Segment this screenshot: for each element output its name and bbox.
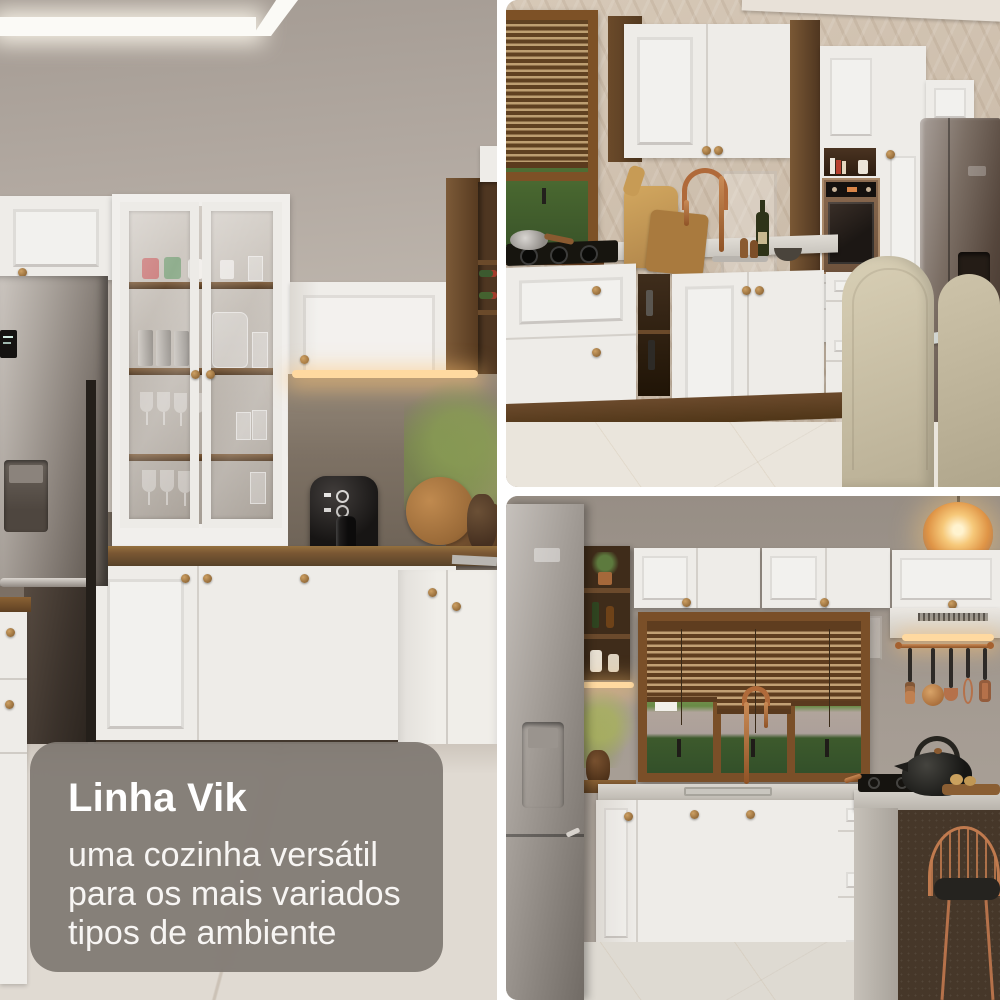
pepper-mill xyxy=(740,238,748,258)
rail-end-cap xyxy=(895,642,902,649)
cabinet-knob xyxy=(452,602,461,611)
shelf-pot xyxy=(598,572,612,585)
air-fryer-display xyxy=(324,493,331,497)
tower-upper-door xyxy=(822,50,880,144)
caption-line-1: uma cozinha versátil xyxy=(68,836,423,875)
photo-left-display-cabinet-kitchen: Linha Vik uma cozinha versátil para os m… xyxy=(0,0,497,1000)
cabinet-knob xyxy=(714,146,723,155)
cabinet-knob xyxy=(702,146,711,155)
wood-countertop xyxy=(94,546,497,566)
cabinet-knob xyxy=(690,810,699,819)
glass-display-cabinet xyxy=(112,194,290,556)
jar xyxy=(858,160,868,174)
caption-title: Linha Vik xyxy=(68,776,423,821)
utensil-handle xyxy=(949,648,953,688)
hanging-grater xyxy=(978,648,992,736)
pepper-mill xyxy=(750,240,758,258)
air-fryer-knob xyxy=(336,490,349,503)
oven-knob xyxy=(832,187,837,192)
hanging-spatula xyxy=(904,648,916,738)
product-collage: Linha Vik uma cozinha versátil para os m… xyxy=(0,0,1000,1000)
open-shelf-unit xyxy=(582,546,630,680)
blind-valance xyxy=(647,621,861,629)
cabinet-knob xyxy=(300,574,309,583)
faucet-spout xyxy=(764,702,768,728)
pane-latch xyxy=(677,739,681,757)
utensil-handle xyxy=(966,648,970,678)
ladle-bowl xyxy=(944,688,958,701)
cabinet-knob xyxy=(191,370,200,379)
shelf-divider xyxy=(582,634,630,639)
hood-vent-grille xyxy=(918,613,988,621)
burner-grate xyxy=(580,245,598,264)
fridge-badge xyxy=(534,548,560,562)
book-niche xyxy=(824,148,876,176)
upper-cabinet-right xyxy=(892,550,1000,608)
cabinet-knob xyxy=(886,150,895,159)
freezer-drawer xyxy=(24,587,88,745)
cabinet-knob xyxy=(5,700,14,709)
shelf-bottle xyxy=(592,602,599,628)
base-cabinets xyxy=(596,800,890,946)
cabinet-knob xyxy=(203,574,212,583)
island-wood-top xyxy=(0,597,31,612)
kettle-lid-knob xyxy=(934,748,942,754)
round-cutting-board xyxy=(406,477,474,545)
blind-cord xyxy=(681,629,682,725)
oven-control-panel xyxy=(826,182,876,197)
spatula-head xyxy=(905,682,915,704)
freezer-handle xyxy=(0,578,90,587)
books xyxy=(836,160,841,174)
shelf-divider xyxy=(478,310,497,315)
utensil-handle xyxy=(931,648,935,684)
bottle-neck xyxy=(760,200,765,212)
base-door xyxy=(94,566,199,742)
bread-bun xyxy=(964,776,976,786)
corner-door xyxy=(596,800,638,946)
cabinet-knob xyxy=(428,588,437,597)
faucet-riser xyxy=(744,702,749,784)
dining-chair xyxy=(938,274,1000,487)
blind-cord xyxy=(755,629,756,733)
hood-light-bar xyxy=(902,634,994,641)
fridge-badge xyxy=(968,166,986,176)
cabinet-knob xyxy=(300,355,309,364)
glass-door-right xyxy=(202,202,282,528)
dispenser-panel xyxy=(9,465,43,483)
upper-cabinet-left xyxy=(0,196,112,280)
ceiling-cove-light xyxy=(0,17,256,36)
fridge-water-dispenser xyxy=(522,722,564,808)
shelf-jar xyxy=(590,650,602,672)
oven-display xyxy=(847,187,857,192)
burner-grate xyxy=(868,777,880,789)
dining-chair xyxy=(842,256,934,487)
hanging-ladle xyxy=(944,648,958,732)
air-fryer-display xyxy=(324,508,331,512)
shelf-divider xyxy=(582,588,630,593)
books xyxy=(830,158,835,174)
utensil-handle xyxy=(908,648,912,682)
photo-top-right-kitchen-run xyxy=(506,0,1000,487)
upper-cabinet-sliver xyxy=(480,146,497,182)
glass-door-left xyxy=(120,202,199,528)
bar-stool-seat xyxy=(934,878,1000,900)
oven-door-glass xyxy=(828,202,874,264)
photo-bottom-right-window-kitchen xyxy=(506,496,1000,1000)
upper-cabinets xyxy=(624,24,790,158)
caption-line-3: tipos de ambiente xyxy=(68,914,423,953)
bottle-label xyxy=(758,232,767,244)
drawer-seam xyxy=(0,678,27,680)
window-handle xyxy=(542,188,546,204)
blind-cord xyxy=(829,629,830,727)
window xyxy=(506,10,598,258)
cutting-board xyxy=(645,209,709,277)
burner-grate xyxy=(550,246,568,265)
cabinet-knob xyxy=(746,810,755,819)
dispenser-panel xyxy=(528,728,558,748)
drawer-seam xyxy=(0,752,27,754)
wine-bottle xyxy=(479,270,497,277)
shelf-bottle xyxy=(606,606,614,628)
upper-door xyxy=(624,24,708,158)
shelf-plant xyxy=(590,552,620,574)
cabinet-knob xyxy=(820,598,829,607)
blind-section xyxy=(791,621,861,706)
chair-seam xyxy=(852,268,928,470)
whisk-wires xyxy=(963,678,973,704)
books xyxy=(842,161,846,174)
blinds-rail xyxy=(506,162,588,168)
under-cabinet-led-strip xyxy=(292,370,478,378)
ceramic-vase xyxy=(467,494,497,552)
bread-bun xyxy=(950,774,963,785)
island-drawers xyxy=(0,612,27,984)
fridge-display-panel xyxy=(0,330,17,358)
cabinet-knob xyxy=(682,598,691,607)
sink-rim xyxy=(684,787,772,796)
utensil-handle xyxy=(983,648,987,680)
cabinet-gap-shadow xyxy=(86,380,96,742)
grater-head xyxy=(979,680,991,702)
cabinet-knob xyxy=(624,812,633,821)
fridge-display-text xyxy=(3,342,11,344)
fridge-display-text xyxy=(3,336,13,338)
pane-latch xyxy=(751,739,755,757)
island-waterfall-edge xyxy=(854,808,898,1000)
oven-knob xyxy=(866,187,871,192)
frying-pan xyxy=(510,230,548,250)
upper-cabinets-left xyxy=(634,548,760,608)
window-sash-bar xyxy=(506,172,588,181)
cabinet-knob xyxy=(6,628,15,637)
blind-section xyxy=(647,621,717,702)
pane-latch xyxy=(825,739,829,757)
skimmer-disc xyxy=(922,684,944,706)
window-blinds xyxy=(506,20,588,166)
fridge-water-dispenser xyxy=(4,460,48,532)
faucet-body xyxy=(719,176,724,252)
caption-line-2: para os mais variados xyxy=(68,875,423,914)
refrigerator xyxy=(506,504,584,1000)
caption-card: Linha Vik uma cozinha versátil para os m… xyxy=(30,742,443,972)
shelf-divider xyxy=(478,260,497,265)
shelf-jar xyxy=(608,654,619,672)
upper-door xyxy=(762,548,827,608)
faucet-spout xyxy=(684,200,689,226)
hanging-skimmer xyxy=(922,648,944,744)
hanging-whisk xyxy=(962,648,974,732)
cabinet-knob xyxy=(181,574,190,583)
wine-bottle xyxy=(479,292,497,299)
cabinet-knob xyxy=(206,370,215,379)
